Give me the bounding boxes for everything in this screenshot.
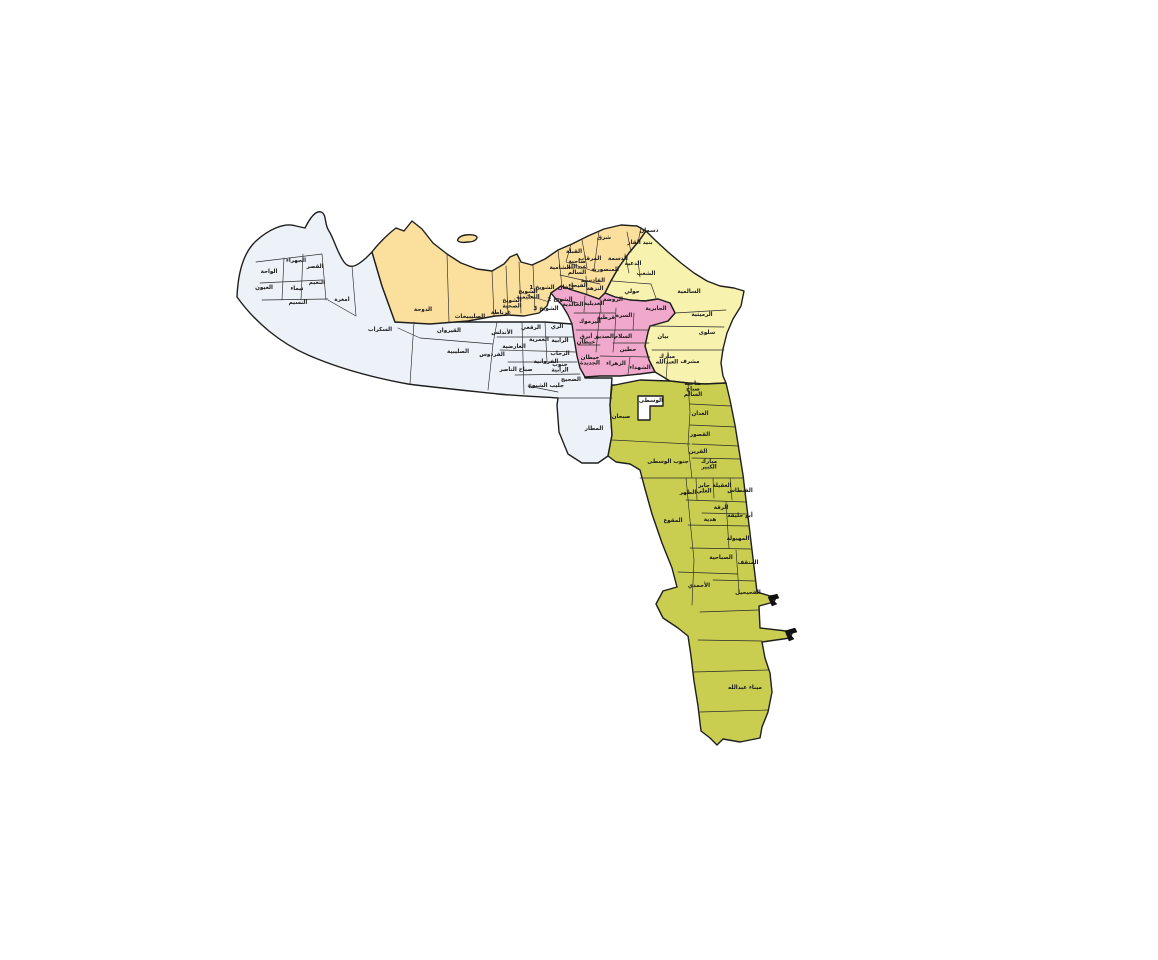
district-label: الجابرية — [645, 306, 666, 312]
district-label: العمرية — [529, 337, 549, 343]
district-label: المطار — [584, 426, 604, 432]
district-label: السرة — [616, 313, 633, 319]
district-label: مشرف — [680, 359, 700, 365]
district-label: المنقف — [738, 560, 759, 566]
district-label: النسيم — [289, 300, 308, 306]
district-label: أبو حليفة — [727, 511, 753, 519]
district-label: حولي — [624, 289, 639, 295]
district-label: الروضة — [603, 297, 623, 303]
district-label: القيروان — [437, 328, 461, 334]
district-label: الرميثية — [691, 312, 712, 318]
district-label: الرقعي — [521, 325, 541, 331]
district-label: المقوع — [663, 518, 682, 524]
district-label: الصليبية — [447, 349, 469, 355]
district-label: الدعية — [625, 261, 642, 267]
district-label: العيون — [255, 285, 273, 291]
district-label: الواحة — [261, 269, 278, 275]
district-label: صباح الناصر — [498, 367, 532, 373]
district-label: القصور — [689, 432, 710, 438]
district-label: امغرة — [334, 297, 349, 303]
district-label: الظهر — [679, 490, 697, 496]
district-label: جنوبالرابية — [551, 362, 568, 374]
district-label: العدان — [691, 411, 708, 417]
district-label: الصديق — [594, 334, 614, 340]
district-label: هدية — [704, 517, 717, 523]
district-label: النعيم — [309, 280, 325, 286]
district-label: الشامية — [550, 265, 571, 271]
district-label: الضجيج — [561, 377, 581, 383]
district-label: مباركالعبدالله — [656, 354, 678, 366]
district-label: الشويخ 3 — [533, 306, 558, 312]
district-label: العارضية — [502, 344, 526, 350]
district-label: دسمان — [640, 228, 659, 234]
district-label: المهبولة — [727, 536, 750, 542]
district-label: ضاحيةصباحالسالم — [684, 381, 702, 398]
district-label: الأحمدي — [688, 581, 710, 589]
district-label: جابرالعلي — [696, 483, 711, 495]
district-label: القصر — [305, 264, 323, 270]
district-label: بنيد القار — [626, 240, 652, 246]
district-label: الفحيحيل — [735, 590, 761, 596]
district-label: بيان — [657, 334, 668, 340]
district-label: ميناء عبدالله — [728, 685, 763, 691]
district-label: سلوى — [699, 330, 716, 336]
district-label: الجهراء — [286, 258, 306, 264]
district-label: الأندلس — [491, 328, 513, 336]
district-label: اليرموك — [579, 319, 601, 325]
district-label: السالمية — [677, 289, 700, 295]
island — [458, 235, 477, 243]
district-label: الدوحة — [414, 307, 432, 313]
district-label: مباركالكبير — [700, 459, 717, 471]
district-label: الرقة — [714, 505, 729, 511]
district-label: صبحان — [612, 414, 631, 420]
district-label: خيطانالجديدة — [580, 355, 600, 367]
district-label: الري — [551, 324, 564, 330]
district-label: القرين — [689, 449, 708, 455]
district-label: حطين — [620, 347, 637, 353]
district-label: غرناطة — [491, 310, 511, 316]
district-label: الزهراء — [606, 361, 626, 367]
district-label: السلام — [614, 334, 632, 340]
district-label: الفنطاس — [727, 488, 753, 494]
district-label: جنوب الوسطى — [647, 459, 689, 465]
district-label: الفردوس — [479, 352, 505, 358]
district-label: الصباحية — [709, 555, 733, 561]
district-label: الشهداء — [629, 365, 650, 371]
district-label: الشويخ 1 — [529, 285, 554, 291]
kuwait-districts-map: الجهراءالقصرالواحةالعيونتيماءالنعيمالنسي… — [0, 0, 1158, 960]
map-canvas: الجهراءالقصرالواحةالعيونتيماءالنعيمالنسي… — [0, 0, 1158, 960]
district-label: الشعب — [637, 271, 656, 277]
district-label: الخالدية — [563, 302, 584, 308]
district-label: الرحاب — [550, 351, 569, 357]
district-label: الوسطى — [639, 398, 663, 404]
district-label: السكراب — [368, 326, 392, 333]
district-label: كيفان — [558, 284, 575, 291]
district-label: الصليبيخات — [455, 314, 485, 320]
district-label: النزهة — [586, 286, 603, 292]
district-label: الرابية — [551, 338, 568, 344]
district-label: المنصورية — [591, 267, 619, 273]
district-label: شرق — [597, 235, 611, 241]
district-label: العديلية — [584, 301, 605, 307]
district-label: القبلة — [566, 249, 582, 255]
district-label: تيماء — [290, 286, 303, 292]
district-label: جليب الشيوخ — [528, 383, 564, 389]
